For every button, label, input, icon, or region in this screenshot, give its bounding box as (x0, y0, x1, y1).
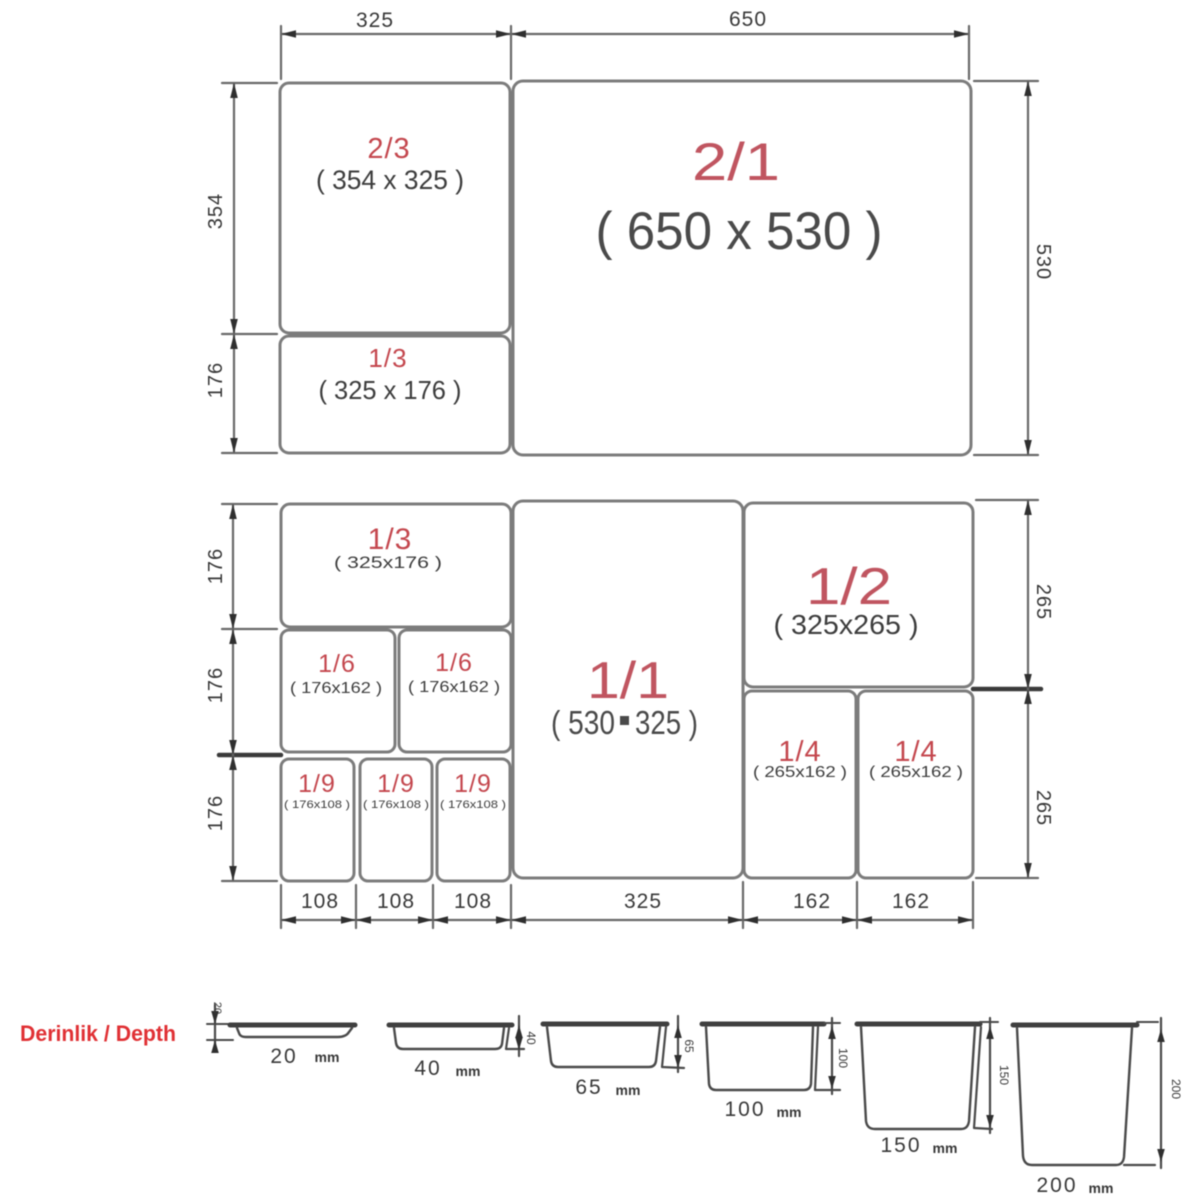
svg-text:1/3: 1/3 (368, 523, 413, 556)
svg-text:2/1: 2/1 (692, 133, 780, 192)
svg-text:1/6: 1/6 (318, 650, 356, 678)
svg-text:265: 265 (1032, 790, 1054, 826)
svg-text:40: 40 (524, 1031, 538, 1045)
svg-text:( 176x162 ): ( 176x162 ) (408, 679, 500, 696)
svg-text:1/2: 1/2 (806, 558, 892, 616)
svg-text:1/3: 1/3 (368, 343, 407, 373)
svg-text:Derinlik / Depth: Derinlik / Depth (20, 1021, 176, 1046)
svg-text:176: 176 (205, 795, 227, 831)
svg-text:650: 650 (729, 8, 767, 31)
svg-text:( 325x265 ): ( 325x265 ) (774, 609, 919, 640)
svg-text:40: 40 (414, 1057, 441, 1080)
svg-text:150: 150 (880, 1134, 921, 1157)
svg-text:( 325 x 176 ): ( 325 x 176 ) (319, 375, 462, 405)
svg-text:200: 200 (1036, 1174, 1077, 1197)
svg-text:( 530: ( 530 (551, 704, 615, 741)
svg-text:162: 162 (892, 890, 930, 913)
svg-text:265: 265 (1032, 584, 1054, 620)
svg-text:176: 176 (205, 667, 227, 703)
svg-text:( 650 x 530 ): ( 650 x 530 ) (596, 202, 883, 261)
svg-text:108: 108 (377, 890, 415, 913)
svg-text:325: 325 (624, 890, 662, 913)
svg-text:176: 176 (205, 362, 227, 398)
svg-text:150: 150 (997, 1065, 1011, 1085)
svg-text:325: 325 (356, 9, 394, 32)
svg-text:1/9: 1/9 (298, 770, 336, 798)
svg-text:1/1: 1/1 (587, 652, 669, 710)
svg-text:mm: mm (456, 1063, 481, 1079)
svg-text:( 176x108 ): ( 176x108 ) (363, 799, 429, 811)
svg-text:mm: mm (933, 1140, 958, 1156)
svg-text:65: 65 (682, 1039, 696, 1053)
svg-text:( 265x162 ): ( 265x162 ) (869, 764, 963, 781)
svg-text:mm: mm (777, 1104, 802, 1120)
svg-text:65: 65 (575, 1076, 602, 1099)
svg-text:108: 108 (301, 890, 339, 913)
svg-text:100: 100 (724, 1098, 765, 1121)
svg-text:20: 20 (270, 1045, 297, 1068)
svg-text:mm: mm (315, 1049, 340, 1065)
svg-text:2/3: 2/3 (367, 133, 410, 165)
svg-text:( 265x162 ): ( 265x162 ) (753, 764, 847, 781)
svg-text:( 176x108 ): ( 176x108 ) (284, 799, 350, 811)
svg-text:100: 100 (836, 1048, 850, 1068)
svg-text:1/6: 1/6 (435, 649, 473, 677)
svg-text:354: 354 (205, 193, 227, 229)
svg-text:1/9: 1/9 (454, 770, 492, 798)
svg-text:530: 530 (1032, 244, 1054, 280)
svg-text:176: 176 (205, 548, 227, 584)
svg-text:mm: mm (1089, 1180, 1114, 1196)
svg-text:200: 200 (1169, 1079, 1183, 1099)
svg-text:( 176x162 ): ( 176x162 ) (290, 680, 382, 697)
svg-text:108: 108 (454, 890, 492, 913)
svg-text:325 ): 325 ) (635, 704, 698, 741)
svg-text:mm: mm (616, 1082, 641, 1098)
svg-text:( 354 x 325 ): ( 354 x 325 ) (316, 165, 464, 195)
svg-text:1/9: 1/9 (377, 770, 415, 798)
svg-text:162: 162 (793, 890, 831, 913)
svg-text:( 325x176 ): ( 325x176 ) (334, 553, 442, 572)
svg-text:( 176x108 ): ( 176x108 ) (440, 799, 506, 811)
svg-text:20: 20 (211, 1002, 223, 1014)
